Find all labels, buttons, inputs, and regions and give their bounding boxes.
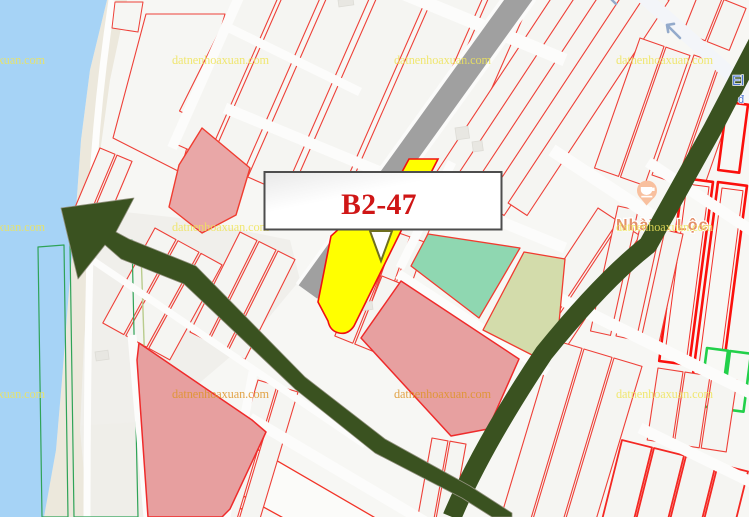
svg-text:datnenhoaxuan.com: datnenhoaxuan.com <box>394 387 492 401</box>
svg-text:datnenhoaxuan.com: datnenhoaxuan.com <box>616 387 714 401</box>
svg-text:datnenhoaxuan.com: datnenhoaxuan.com <box>0 220 46 234</box>
svg-text:datnenhoaxuan.com: datnenhoaxuan.com <box>0 53 46 67</box>
svg-text:El: El <box>732 73 744 88</box>
svg-text:datnenhoaxuan.com: datnenhoaxuan.com <box>172 53 270 67</box>
svg-text:datnenhoaxuan.com: datnenhoaxuan.com <box>0 387 46 401</box>
svg-text:B2-47: B2-47 <box>341 189 417 221</box>
svg-text:datnenhoaxuan.com: datnenhoaxuan.com <box>616 220 714 234</box>
svg-text:datnenhoaxuan.com: datnenhoaxuan.com <box>172 387 270 401</box>
svg-text:datnenhoaxuan.com: datnenhoaxuan.com <box>394 53 492 67</box>
svg-text:datnenhoaxuan.com: datnenhoaxuan.com <box>616 53 714 67</box>
svg-text:datnenhoaxuan.com: datnenhoaxuan.com <box>172 220 270 234</box>
svg-text:đ: đ <box>738 94 745 106</box>
